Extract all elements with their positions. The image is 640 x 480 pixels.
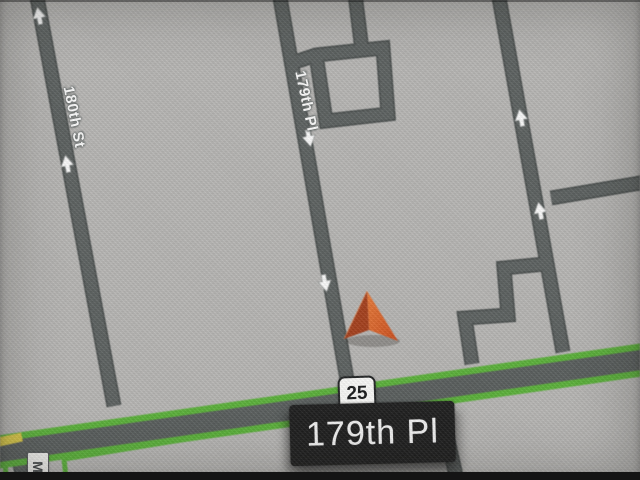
current-street-banner-text: 179th Pl [306,412,440,454]
current-street-banner[interactable]: 179th Pl [289,401,456,466]
yellow-road-stub [0,437,22,443]
street-label-m-partial: M [27,452,49,480]
route-shield-number: 25 [346,383,368,406]
gps-map-screen: 180th St 179th Pl M 25 179th Pl [0,0,640,480]
